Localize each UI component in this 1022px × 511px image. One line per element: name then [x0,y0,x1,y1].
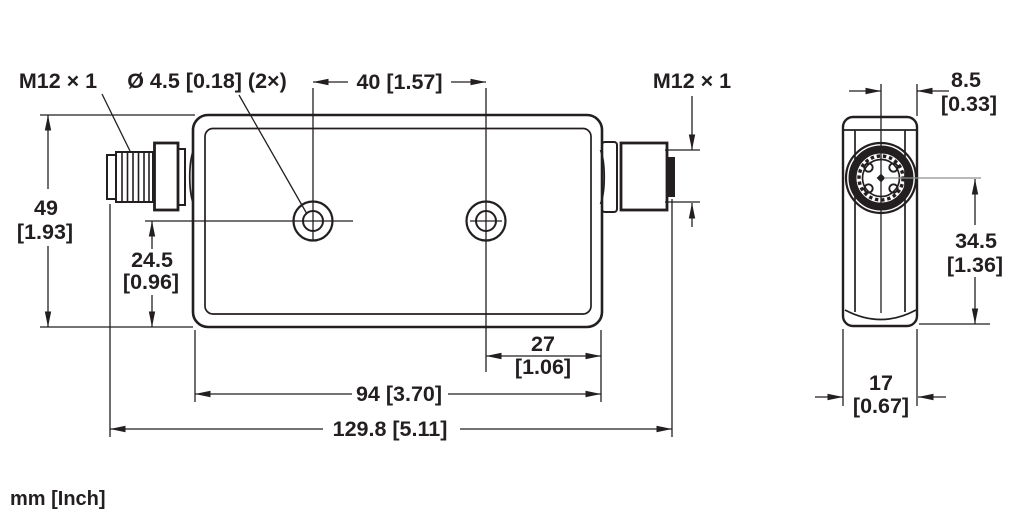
knurl-nut [155,143,179,210]
dim-connector-height: 34.5 [1.36] [919,179,1003,324]
connector-face [846,143,981,213]
leader-line [239,95,307,214]
hole-callout-label: Ø 4.5 [0.18] (2×) [127,69,287,93]
dim-hole-center-mm: 24.5 [131,248,173,272]
dim-overall-length-label: 129.8 [5.11] [333,417,448,441]
dim-connector-height-inch: [1.36] [947,253,1003,277]
dim-center-offset-inch: [0.33] [941,92,997,116]
dim-height-inch: [1.93] [17,220,73,244]
units-note: mm [Inch] [10,488,106,510]
thread-lines [122,152,149,202]
end-view: 8.5 [0.33] 34.5 [1.36] 17 [0.67] [815,68,1003,418]
dim-hole-to-end-inch: [1.06] [515,355,571,379]
dim-hole-spacing-label: 40 [1.57] [356,70,442,94]
drawing-canvas: 40 [1.57] 49 [1.93] 24.5 [0.96] 27 [1.06… [0,0,1022,511]
knurl-nut [621,143,667,210]
callout-left-m12: M12 × 1 [19,69,130,151]
dim-end-width-inch: [0.67] [853,394,909,418]
dim-hole-center-inch: [0.96] [123,270,179,294]
connector-tip [107,155,116,199]
dim-center-offset-mm: 8.5 [951,68,981,92]
dim-hole-to-end: 27 [1.06] [486,332,601,379]
dim-connector-height-mm: 34.5 [955,229,997,253]
technical-drawing: 40 [1.57] 49 [1.93] 24.5 [0.96] 27 [1.06… [0,0,1022,511]
dim-end-width-mm: 17 [869,371,893,395]
left-connector-label: M12 × 1 [19,69,97,93]
dim-hole-to-end-mm: 27 [531,332,555,356]
leader-line [102,94,130,151]
socket-end [667,157,675,197]
dim-body-length-label: 94 [3.70] [356,382,442,406]
dim-center-offset: 8.5 [0.33] [849,68,997,116]
left-connector [107,143,185,210]
side-view: 40 [1.57] 49 [1.93] 24.5 [0.96] 27 [1.06… [17,69,731,441]
right-connector [602,142,675,212]
dim-height-mm: 49 [34,196,58,220]
dim-end-width: 17 [0.67] [815,329,946,418]
right-connector-label: M12 × 1 [653,69,731,93]
callout-right-m12: M12 × 1 [653,69,731,227]
dim-hole-center-height: 24.5 [0.96] [123,221,179,327]
